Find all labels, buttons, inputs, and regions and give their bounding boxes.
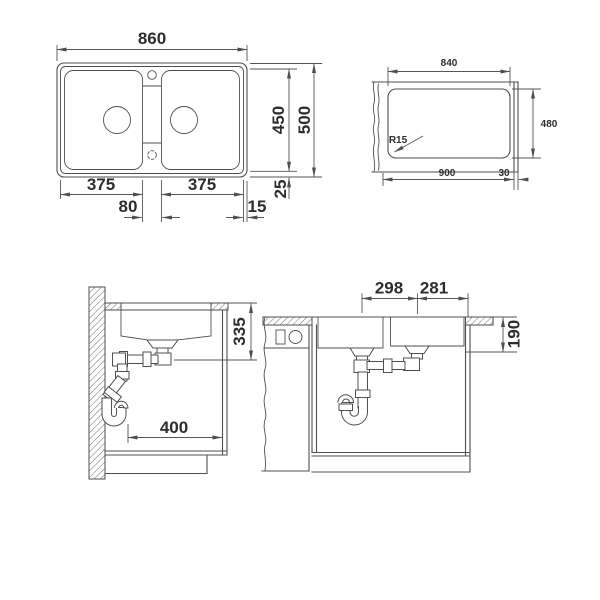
break-line bbox=[373, 82, 374, 172]
dim-label-80: 80 bbox=[119, 197, 138, 216]
right-bowl bbox=[162, 71, 240, 170]
dim-label-335: 335 bbox=[230, 317, 249, 345]
side-view: 335 400 bbox=[89, 287, 257, 479]
drain-plumbing-side bbox=[102, 340, 178, 426]
dim-label-840: 840 bbox=[441, 58, 458, 69]
left-bowl-front bbox=[318, 317, 383, 348]
dim-label-298: 298 bbox=[375, 279, 403, 298]
dim-label-860: 860 bbox=[138, 29, 166, 48]
cutout-radius-callout: R15 bbox=[389, 135, 423, 152]
side-dim-drain-height: 335 bbox=[174, 304, 257, 360]
dim-label-375-left: 375 bbox=[87, 175, 115, 194]
dim-label-500: 500 bbox=[295, 106, 314, 134]
dim-label-281: 281 bbox=[420, 279, 448, 298]
break-line bbox=[264, 317, 266, 471]
dim-label-900: 900 bbox=[439, 168, 456, 179]
outlet-socket bbox=[276, 330, 285, 344]
sink-bowl-section bbox=[121, 310, 211, 340]
front-dim-drains: 298 281 bbox=[362, 279, 468, 318]
left-drain-flange bbox=[350, 348, 374, 356]
sink-bowls-front bbox=[318, 317, 464, 348]
sink-installation-drawing: 860 450 500 25 bbox=[0, 0, 600, 600]
countertop-front bbox=[263, 317, 517, 325]
tap-hole bbox=[148, 71, 157, 80]
outlet-round bbox=[289, 331, 302, 344]
base-cabinet-front bbox=[312, 325, 470, 472]
drain-plumbing-front bbox=[338, 346, 429, 425]
dim-label-30: 30 bbox=[498, 168, 510, 179]
dim-label-400: 400 bbox=[160, 418, 188, 437]
dim-label-190: 190 bbox=[505, 320, 524, 348]
right-bowl-front bbox=[391, 317, 465, 346]
drain-flange bbox=[147, 340, 178, 348]
base-cabinet bbox=[105, 310, 227, 474]
break-line-inner bbox=[378, 84, 379, 170]
tap-hole-optional bbox=[148, 151, 157, 160]
plan-dim-overall-width: 860 bbox=[57, 29, 247, 61]
side-dim-drain-offset: 400 bbox=[128, 418, 222, 443]
cutout-outline bbox=[388, 89, 510, 158]
sink-rim bbox=[61, 67, 244, 174]
drawing-svg: 860 450 500 25 bbox=[0, 0, 600, 600]
right-drain bbox=[171, 107, 198, 134]
dim-label-450: 450 bbox=[269, 106, 288, 134]
dim-label-15: 15 bbox=[248, 197, 267, 216]
left-drain bbox=[104, 107, 131, 134]
plan-dim-depth: 450 500 25 bbox=[250, 64, 322, 200]
plan-view: 860 450 500 25 bbox=[57, 29, 322, 222]
adjacent-wall bbox=[262, 317, 309, 471]
center-web bbox=[143, 71, 162, 160]
wall-section bbox=[89, 287, 105, 479]
cutout-dim-base: 900 30 bbox=[383, 168, 527, 190]
countertop bbox=[105, 303, 257, 310]
cutout-view: 840 480 R15 900 30 bbox=[372, 58, 558, 190]
dim-label-r15: R15 bbox=[389, 135, 408, 146]
right-drain-flange bbox=[405, 346, 429, 354]
dim-label-480: 480 bbox=[541, 119, 558, 130]
dim-label-375-right: 375 bbox=[188, 175, 216, 194]
sink-outline bbox=[57, 63, 247, 177]
plan-dim-bowls: 375 375 80 15 bbox=[61, 175, 267, 222]
dim-label-25: 25 bbox=[271, 180, 290, 199]
cutout-dim-depth: 480 bbox=[512, 89, 558, 158]
front-view: 298 281 190 bbox=[262, 279, 524, 473]
